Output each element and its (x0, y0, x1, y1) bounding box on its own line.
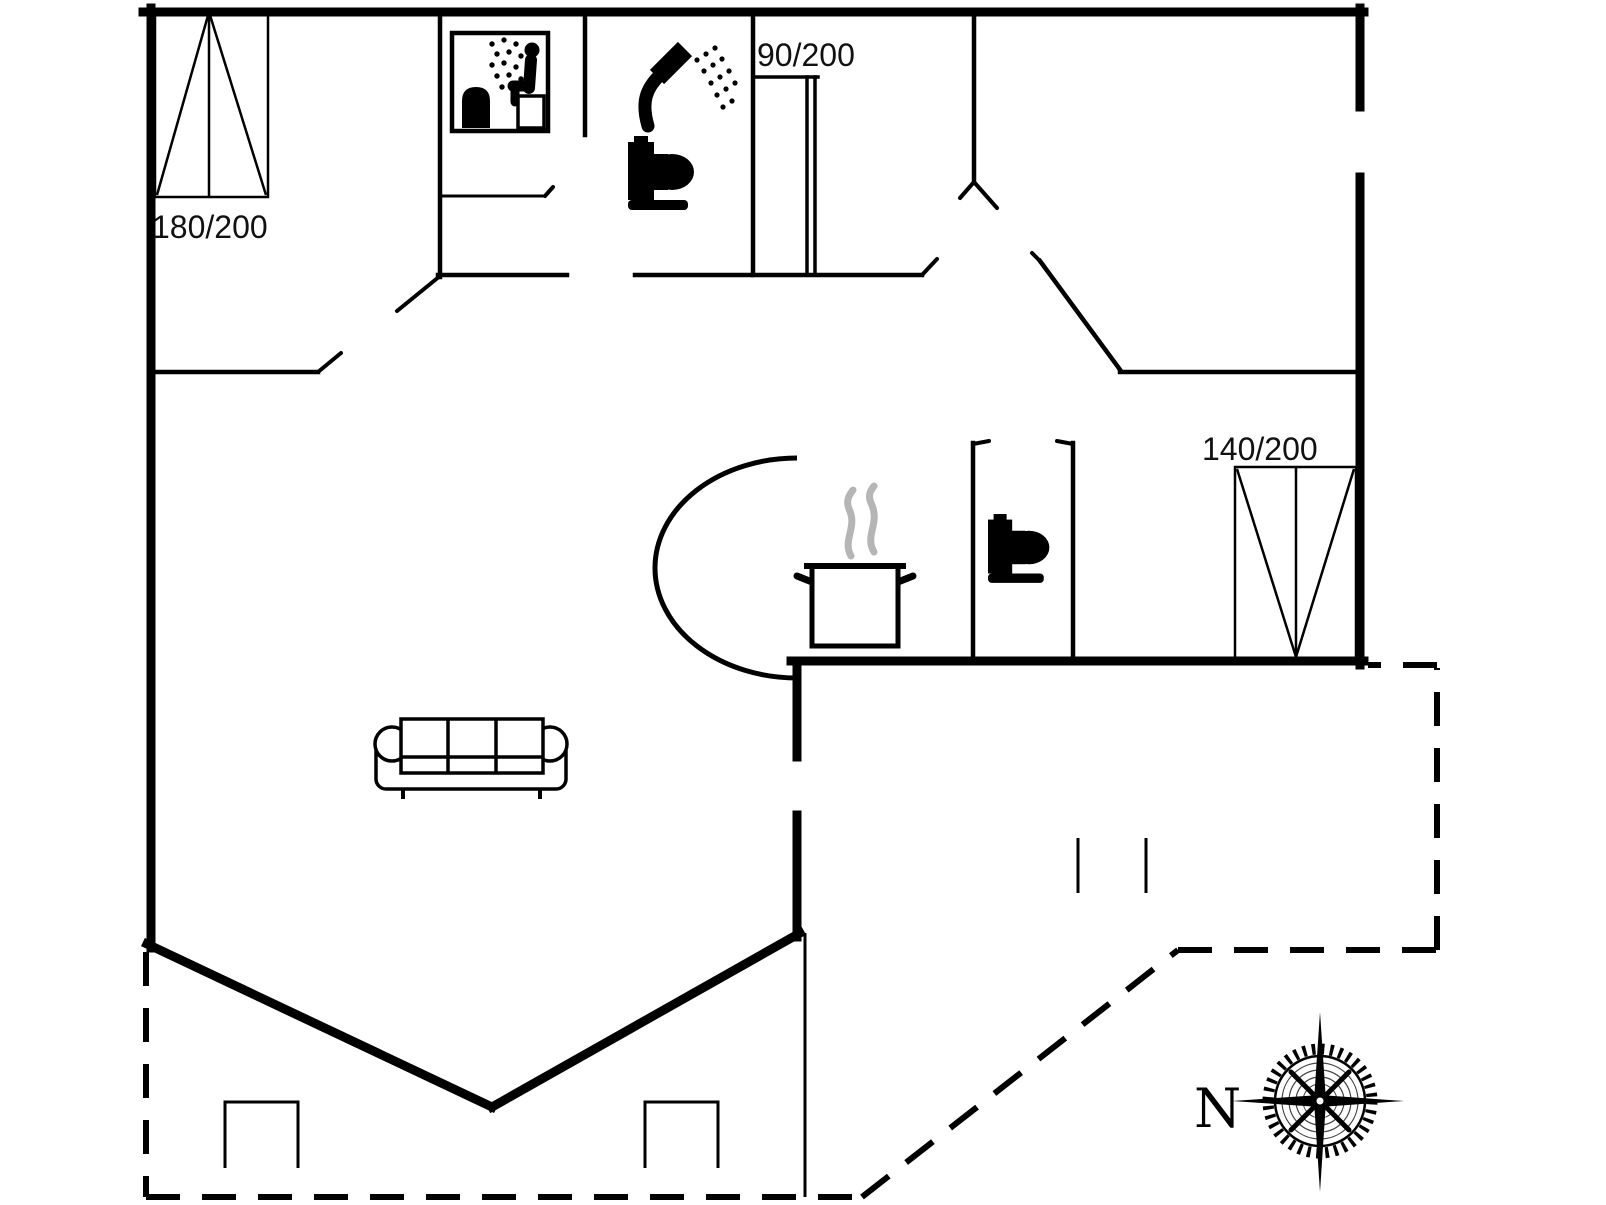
label-door-90-200: 90/200 (757, 37, 855, 73)
sauna-icon (452, 33, 548, 131)
toilet-icon (628, 136, 694, 210)
plan-structure (143, 8, 1437, 1197)
terrace-post-left (225, 1102, 298, 1168)
steam-wave (848, 490, 853, 556)
terrace-dashed-boundary (862, 950, 1178, 1197)
door-tick (974, 182, 997, 208)
shower-spray-dots (694, 45, 737, 109)
cooking-pot-icon (797, 486, 913, 646)
door-tick (1032, 253, 1040, 261)
window-140x200-sash (1237, 469, 1296, 657)
floor-plan-canvas: 180/200 90/200 140/200 N (0, 0, 1606, 1205)
wall-interior (1040, 261, 1121, 371)
sofa-icon (375, 719, 567, 799)
terrace-post-right (645, 1102, 718, 1168)
steam-wave (869, 486, 874, 552)
door-tick (318, 353, 341, 372)
window-180x200 (155, 10, 268, 197)
label-window-140-200: 140/200 (1202, 431, 1318, 467)
toilet-icon-2 (988, 514, 1049, 583)
window-140x200-sash (1296, 469, 1354, 657)
door-tick (1057, 441, 1073, 444)
door-tick (397, 276, 440, 311)
door-tick (960, 182, 974, 198)
wall-exterior (492, 933, 800, 1107)
window-180x200-sash (209, 12, 266, 195)
door-tick (922, 259, 937, 275)
shower-icon (645, 45, 738, 126)
door-tick (545, 187, 553, 196)
kitchen-door-arc (655, 458, 797, 678)
compass-north-label: N (1194, 1077, 1241, 1140)
door-tick (973, 441, 989, 444)
window-180x200-sash (157, 12, 209, 195)
wall-exterior (147, 944, 492, 1107)
compass-rose-icon (1232, 1012, 1404, 1192)
floor-plan-drawing: 180/200 90/200 140/200 N (0, 0, 1606, 1205)
label-window-180-200: 180/200 (152, 209, 268, 245)
